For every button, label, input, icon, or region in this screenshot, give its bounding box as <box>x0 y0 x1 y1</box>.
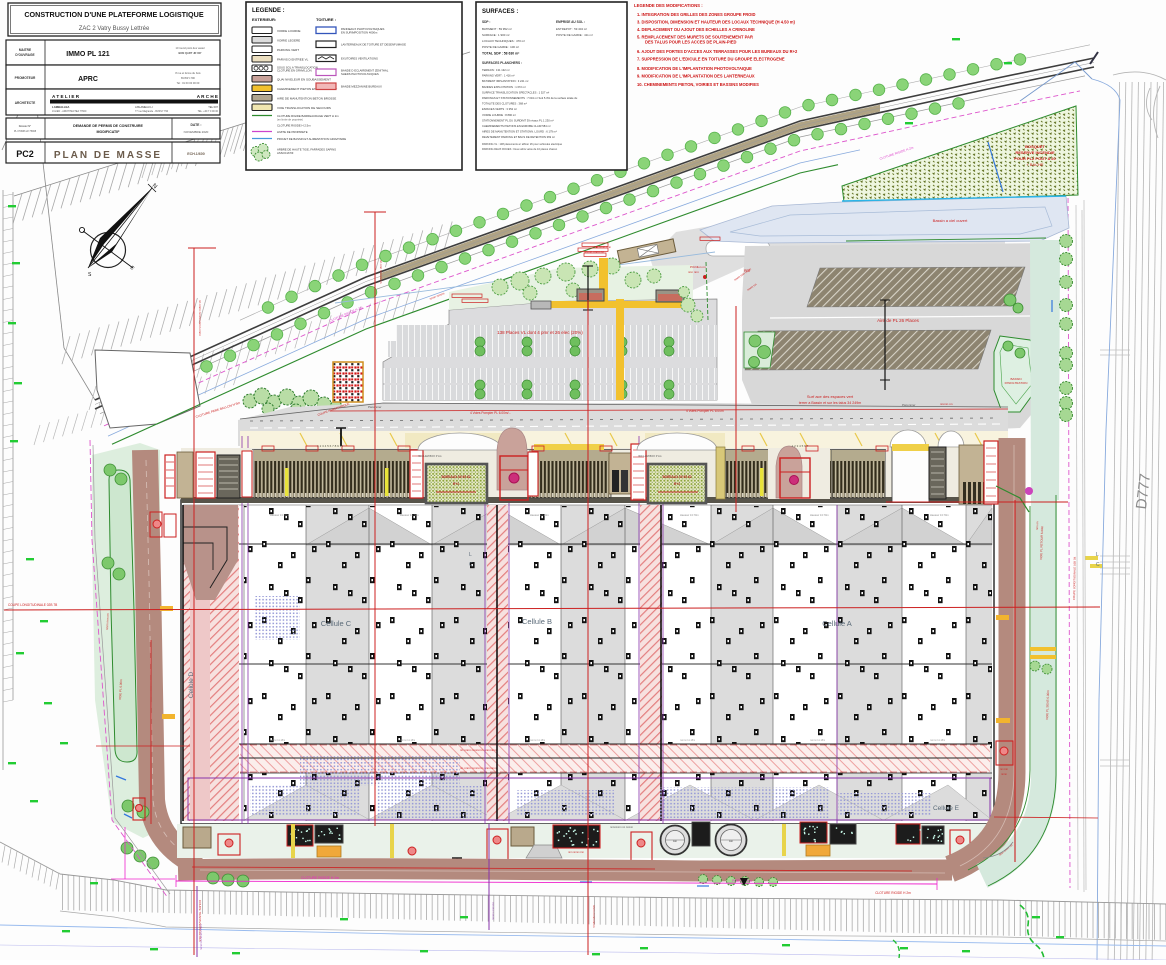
svg-text:Hauteur 13.70m: Hauteur 13.70m <box>270 513 289 517</box>
svg-text:BUREAUX 60 65 62: BUREAUX 60 65 62 <box>441 475 470 479</box>
svg-text:BANDE MEZZANINE BUREAUX: BANDE MEZZANINE BUREAUX <box>341 85 382 89</box>
svg-text:6. AJOUT DES PORTES D'ACCES AU: 6. AJOUT DES PORTES D'ACCES AUX TERRASSE… <box>637 49 798 54</box>
svg-text:BATIMENT IMPLANTATION : 3 241: BATIMENT IMPLANTATION : 3 241 m² <box>482 79 528 83</box>
svg-text:TEL 007: TEL 007 <box>208 105 218 109</box>
svg-text:Cellule E: Cellule E <box>933 805 960 812</box>
svg-text:nnn nnnn nnn: nnn nnnn nnn <box>568 851 584 854</box>
svg-text:nnnnn 11.18m: nnnnn 11.18m <box>530 739 545 742</box>
svg-text:AIRES DE MANUTENTION ET STATIO: AIRES DE MANUTENTION ET STATIONN. LOURD … <box>482 130 557 134</box>
svg-text:8. MODIFICATION DE L'IMPLANTAT: 8. MODIFICATION DE L'IMPLANTATION PHOTOV… <box>637 66 752 71</box>
svg-text:nnnn: nnnn <box>1001 773 1007 776</box>
svg-text:LEGENDE DES MODIFICATIONS :: LEGENDE DES MODIFICATIONS : <box>634 3 703 8</box>
svg-text:D'INFILTRATION: D'INFILTRATION <box>1005 381 1028 385</box>
svg-text:Surf ace des espaces vert: Surf ace des espaces vert <box>807 394 854 399</box>
svg-text:VOIRIE LOURDE : 8 890 m²: VOIRIE LOURDE : 8 890 m² <box>482 113 516 117</box>
svg-text:POUR PL2 POUT A 20: POUR PL2 POUT A 20 <box>1014 156 1056 161</box>
svg-text:nnn nnn: nnn nnn <box>688 270 699 274</box>
svg-text:Dossier N°: Dossier N° <box>19 124 31 128</box>
svg-text:Hauteur 13.70m: Hauteur 13.70m <box>810 513 829 517</box>
svg-text:1 2 3 4 5 6 7 8 9 10: 1 2 3 4 5 6 7 8 9 10 <box>317 444 343 448</box>
svg-text:SDP :: SDP : <box>482 20 490 24</box>
svg-text:PARKINGS ET STATIONNEMENTS : 7: PARKINGS ET STATIONNEMENTS : 7 034 m² So… <box>482 96 578 100</box>
svg-text:Cellule C: Cellule C <box>321 619 352 628</box>
svg-text:LIMITE DE PROPRIETE: LIMITE DE PROPRIETE <box>277 130 308 134</box>
svg-text:PARKING DEUX ROUES : Deux abri: PARKING DEUX ROUES : Deux abris velos de… <box>482 147 558 151</box>
svg-text:terrer a Bassin et sur les tal: terrer a Bassin et sur les talus 34 249m <box>799 401 862 405</box>
svg-text:SURFACE : 1 900 m²: SURFACE : 1 900 m² <box>482 33 510 37</box>
svg-text:PLAN DE MASSE: PLAN DE MASSE <box>54 150 162 161</box>
svg-text:nnn: nnn <box>673 840 678 843</box>
svg-text:BANDES EXPLOITATION : 1 672 m²: BANDES EXPLOITATION : 1 672 m² <box>482 85 526 89</box>
svg-text:BUSSY-790: BUSSY-790 <box>181 76 195 80</box>
svg-text:CLOTURE RIGIDE H 2.5m: CLOTURE RIGIDE H 2.5m <box>277 124 311 128</box>
svg-text:TERRAIN : 131 132 m²: TERRAIN : 131 132 m² <box>482 68 510 72</box>
svg-text:POSTE DE GARDE : 411 m²: POSTE DE GARDE : 411 m² <box>556 33 593 37</box>
svg-text:TEL. +00 7 0 00 00: TEL. +00 7 0 00 00 <box>198 110 219 113</box>
svg-text:PROJET DE BASSIN ET ALIMENTATI: PROJET DE BASSIN ET ALIMENTATION GRAVITA… <box>277 137 346 141</box>
svg-text:PROMOTEUR: PROMOTEUR <box>15 76 36 80</box>
svg-text:R+1: R+1 <box>674 482 680 486</box>
svg-text:ENTREPOT : 59 404 m²: ENTREPOT : 59 404 m² <box>556 27 587 31</box>
svg-text:EXUTOIRES VENTILATIONS: EXUTOIRES VENTILATIONS <box>341 57 378 61</box>
svg-text:Aire de PL 26 Places: Aire de PL 26 Places <box>877 318 920 323</box>
svg-text:nnn: nnn <box>729 840 734 843</box>
svg-text:SURFACE TRANSLOCATION SPECTACL: SURFACE TRANSLOCATION SPECTACLES : 1 527… <box>482 90 549 94</box>
svg-text:nnnnn 11.18m: nnnnn 11.18m <box>400 739 415 742</box>
svg-text:nnnnnnnnnnnn nnnn: nnnnnnnnnnnn nnnn <box>199 924 203 950</box>
svg-text:nn nnnn nnnnnnn nnnnnnnn: nn nnnn nnnnnnn nnnnnnnn <box>460 748 498 752</box>
svg-text:Bassin a ciel ouvert: Bassin a ciel ouvert <box>933 218 969 223</box>
svg-text:A BLAMEAU LI: A BLAMEAU LI <box>135 105 153 109</box>
svg-text:TOITURE :: TOITURE : <box>316 17 336 22</box>
svg-text:nn nnn nnnnnnnn: nn nnn nnnnnnnn <box>379 260 383 284</box>
svg-text:BATIMENT : 59 952 m²: BATIMENT : 59 952 m² <box>482 27 512 31</box>
svg-text:BOSQUET: BOSQUET <box>1025 144 1045 149</box>
svg-text:9. MODIFICATION DE L'IMPLANTAT: 9. MODIFICATION DE L'IMPLANTATION DES LA… <box>637 74 755 79</box>
svg-text:LAMBALLEA: LAMBALLEA <box>52 105 69 109</box>
svg-text:nnnnn 11.18m: nnnnn 11.18m <box>810 739 825 742</box>
svg-text:3. DISPOSITION, DIMENSION ET H: 3. DISPOSITION, DIMENSION ET HAUTEUR DES… <box>637 20 795 25</box>
svg-text:D'OUVRAGE: D'OUVRAGE <box>15 53 34 57</box>
svg-text:R+1: R+1 <box>453 482 459 486</box>
svg-text:ARCHITECTE: ARCHITECTE <box>15 101 36 105</box>
svg-text:nnnnnnnn nn nnnnn: nnnnnnnn nn nnnnn <box>610 826 634 829</box>
svg-text:VOIRIE LOURDE: VOIRIE LOURDE <box>277 29 301 33</box>
svg-text:77 rue Magrande - BUSSY 790: 77 rue Magrande - BUSSY 790 <box>135 110 169 113</box>
svg-text:nnnnn 11.18m: nnnnn 11.18m <box>680 739 695 742</box>
svg-text:nnnnn 11.18m: nnnnn 11.18m <box>930 739 945 742</box>
svg-text:JULIEN - ARCHITECTEA 77600: JULIEN - ARCHITECTEA 77600 <box>52 110 87 113</box>
svg-text:CONSTRUCTION D'UNE PLATEFORME: CONSTRUCTION D'UNE PLATEFORME LOGISTIQUE <box>24 10 203 19</box>
svg-text:TOTAL SDP : 58 630 m²: TOTAL SDP : 58 630 m² <box>482 52 520 56</box>
svg-text:nn nnnn nnnnnnnnnn nnnn: nn nnnn nnnnnnnnnn nnnn <box>198 300 202 336</box>
svg-text:7. SUPPRESSION DE L'EDICULE EN: 7. SUPPRESSION DE L'EDICULE EN TOITURE D… <box>637 57 785 62</box>
svg-text:CLOTURE RIGIDE BARREAUDAGE VER: CLOTURE RIGIDE BARREAUDAGE VERT H 2m <box>277 114 339 118</box>
svg-text:(en limite de propriete): (en limite de propriete) <box>277 118 303 122</box>
svg-text:AIRE DE MANUTENTION BETON BROS: AIRE DE MANUTENTION BETON BROSSE <box>277 97 336 101</box>
svg-text:ECH.1/600: ECH.1/600 <box>187 152 205 156</box>
svg-text:A T E L I E R: A T E L I E R <box>52 94 80 99</box>
svg-text:EN SURIMPOSITION 4000m: EN SURIMPOSITION 4000m <box>341 30 378 34</box>
svg-text:PARKING VERT : 1 416 m²: PARKING VERT : 1 416 m² <box>482 74 515 78</box>
svg-text:QUAI NIVELEUR EN SOUBASSEMENT: QUAI NIVELEUR EN SOUBASSEMENT <box>277 78 331 82</box>
svg-text:1. INTEGRATION DES GRILLES DES: 1. INTEGRATION DES GRILLES DES ZONES GRO… <box>637 12 755 17</box>
svg-text:nnnnn nnnnnn: nnnnn nnnnnn <box>491 902 495 920</box>
svg-text:1 2 3 4 5 6 7: 1 2 3 4 5 6 7 <box>792 444 809 448</box>
svg-text:VOIRIE LEGERE: VOIRIE LEGERE <box>277 39 300 43</box>
svg-text:COUPE LONGITUDINALE 02B 7B: COUPE LONGITUDINALE 02B 7B <box>8 603 57 607</box>
svg-text:PC2: PC2 <box>16 149 34 159</box>
svg-text:nnnn nnnnnnnnn: nnnn nnnnnnnnn <box>592 905 596 928</box>
svg-text:A R C H E: A R C H E <box>197 94 218 99</box>
svg-text:Pietonnier: Pietonnier <box>902 403 916 407</box>
svg-text:SHEDS PHOTOVOLTAIQUES: SHEDS PHOTOVOLTAIQUES <box>341 72 379 76</box>
svg-text:PL 070966 22 75008: PL 070966 22 75008 <box>14 130 37 133</box>
svg-text:DEMANDE DE PERMIS DE CONSTRUIR: DEMANDE DE PERMIS DE CONSTRUIRE <box>73 124 143 128</box>
svg-text:POSTE DE GARDE : 100 m²: POSTE DE GARDE : 100 m² <box>482 45 519 49</box>
svg-text:SURFACES PLANCHERS :: SURFACES PLANCHERS : <box>482 61 522 65</box>
svg-text:COUPE LONGITUDINALE 02B 7B: COUPE LONGITUDINALE 02B 7B <box>1072 557 1077 600</box>
svg-text:+ BACHE: + BACHE <box>1026 162 1044 167</box>
svg-text:C: C <box>1096 562 1100 568</box>
svg-text:PARVIS D ENTREE VL: PARVIS D ENTREE VL <box>277 58 309 62</box>
svg-text:L: L <box>1096 552 1099 558</box>
svg-text:4 Voies Pompier PL 6.00m: 4 Voies Pompier PL 6.00m <box>686 409 724 413</box>
svg-text:WC L&M BOX P LG: WC L&M BOX P LG <box>638 454 661 458</box>
svg-text:MODIFICATIF: MODIFICATIF <box>97 130 121 134</box>
svg-text:Cellule A: Cellule A <box>822 619 852 628</box>
svg-text:BON QART JR 007: BON QART JR 007 <box>179 51 202 55</box>
svg-text:PARKING VERT: PARKING VERT <box>277 48 299 52</box>
svg-text:Tel : 01 60 00 00 00: Tel : 01 60 00 00 00 <box>177 81 200 85</box>
svg-text:8 rue et ferme du bois: 8 rue et ferme du bois <box>175 71 201 75</box>
svg-text:BUREAUX 60 65 62: BUREAUX 60 65 62 <box>662 475 691 479</box>
svg-text:Hauteur 13.70m: Hauteur 13.70m <box>930 513 949 517</box>
svg-text:VOIE TRANSLOCATION DE SECOURS: VOIE TRANSLOCATION DE SECOURS <box>277 106 331 110</box>
svg-text:10 round point des vastel: 10 round point des vastel <box>176 46 205 50</box>
svg-text:LEGENDE :: LEGENDE : <box>252 8 285 14</box>
svg-text:ESPACES VERTS : 3 352 m²: ESPACES VERTS : 3 352 m² <box>482 107 517 111</box>
svg-text:10. CHEMINEMENTS PIETON, VOIRI: 10. CHEMINEMENTS PIETON, VOIRIES ET BASS… <box>637 82 759 87</box>
svg-text:LANTERNEAUX DE TOITURE ET DESE: LANTERNEAUX DE TOITURE ET DESENFUMAGE <box>341 43 406 47</box>
svg-text:■ nnnn nnn: ■ nnnn nnn <box>596 245 611 249</box>
svg-text:EXTERIEUR:: EXTERIEUR: <box>252 17 276 22</box>
svg-text:nn nnn: nn nnn <box>1000 768 1008 771</box>
svg-text:nnnnn nnnn nn: nnnnn nnnn nn <box>584 250 604 254</box>
svg-text:RESERVE INCENDIE: RESERVE INCENDIE <box>1015 150 1055 155</box>
svg-text:nnn nn: nnn nn <box>1035 521 1039 530</box>
svg-text:TOTALITE DES CLOTURES : 368 m²: TOTALITE DES CLOTURES : 368 m² <box>482 102 527 106</box>
svg-text:C: C <box>469 562 473 568</box>
svg-text:4 Voies Pompier PL 6.00m/...: 4 Voies Pompier PL 6.00m/... <box>470 411 511 415</box>
svg-text:APRC: APRC <box>78 76 98 83</box>
svg-text:Hauteur 13.70m: Hauteur 13.70m <box>400 513 419 517</box>
svg-text:REVETEMENT PARKING ET BACS DE: REVETEMENT PARKING ET BACS DE RETENTION … <box>482 135 555 139</box>
svg-text:Cellule B: Cellule B <box>522 617 552 626</box>
svg-text:PARKING VL : 138 placements a: PARKING VL : 138 placements a l affiner … <box>482 142 563 146</box>
svg-text:EMPRISE AU SOL :: EMPRISE AU SOL : <box>556 20 585 24</box>
svg-text:CLOTURE RIGIDE H 2m: CLOTURE RIGIDE H 2m <box>875 891 911 895</box>
svg-text:POrtillon nn: POrtillon nn <box>690 265 706 269</box>
svg-text:Hauteur 13.70m: Hauteur 13.70m <box>680 513 699 517</box>
svg-text:NOVEMBRE 2020: NOVEMBRE 2020 <box>184 130 209 134</box>
svg-text:L: L <box>469 552 472 558</box>
svg-text:MAITRE: MAITRE <box>19 48 31 52</box>
svg-text:ZAC 2 Vatry Bussy Lettrée: ZAC 2 Vatry Bussy Lettrée <box>79 26 150 32</box>
svg-text:CLOTURE RIGIDE H 2m: CLOTURE RIGIDE H 2m <box>301 876 339 880</box>
svg-text:ASSOCIATIF: ASSOCIATIF <box>277 151 294 155</box>
svg-text:WC L&M BOX P LG: WC L&M BOX P LG <box>418 454 441 458</box>
svg-text:nnnnn 11.18m: nnnnn 11.18m <box>270 739 285 742</box>
svg-text:STATIONNEMENT PL DU SURDIMT 39: STATIONNEMENT PL DU SURDIMT 39 nivaux PL… <box>482 118 554 122</box>
svg-text:4. DEPLACEMENT OU AJOUT DES EC: 4. DEPLACEMENT OU AJOUT DES ECHELLES A C… <box>637 27 755 32</box>
svg-text:DES TALUS POUR LES ACCES DE PL: DES TALUS POUR LES ACCES DE PLAIN-PIED <box>645 40 736 45</box>
svg-text:CLOTURE EN GRAVILLON: CLOTURE EN GRAVILLON <box>277 69 312 73</box>
svg-text:LOCAUX TECHNIQUES : 470 m²: LOCAUX TECHNIQUES : 470 m² <box>482 39 525 43</box>
svg-text:DATE :: DATE : <box>190 123 201 127</box>
svg-text:nn nnnn nnnnnnn nnnnnnnn: nn nnnn nnnnnnn nnnnnnnn <box>460 766 498 770</box>
svg-text:SURFACES :: SURFACES : <box>482 9 518 15</box>
svg-text:Hauteur 13.70m: Hauteur 13.70m <box>530 513 549 517</box>
svg-text:CHEMINEMENTS PIETONS EN ENROBE: CHEMINEMENTS PIETONS EN ENROBE CLAIR 584… <box>482 124 551 128</box>
svg-text:nnnnn nn: nnnnn nn <box>940 402 953 406</box>
svg-text:IMMO PL 121: IMMO PL 121 <box>66 51 110 58</box>
svg-text:138 Places VL dont 4 pmr et 26: 138 Places VL dont 4 pmr et 26 elec (20%… <box>497 330 583 335</box>
